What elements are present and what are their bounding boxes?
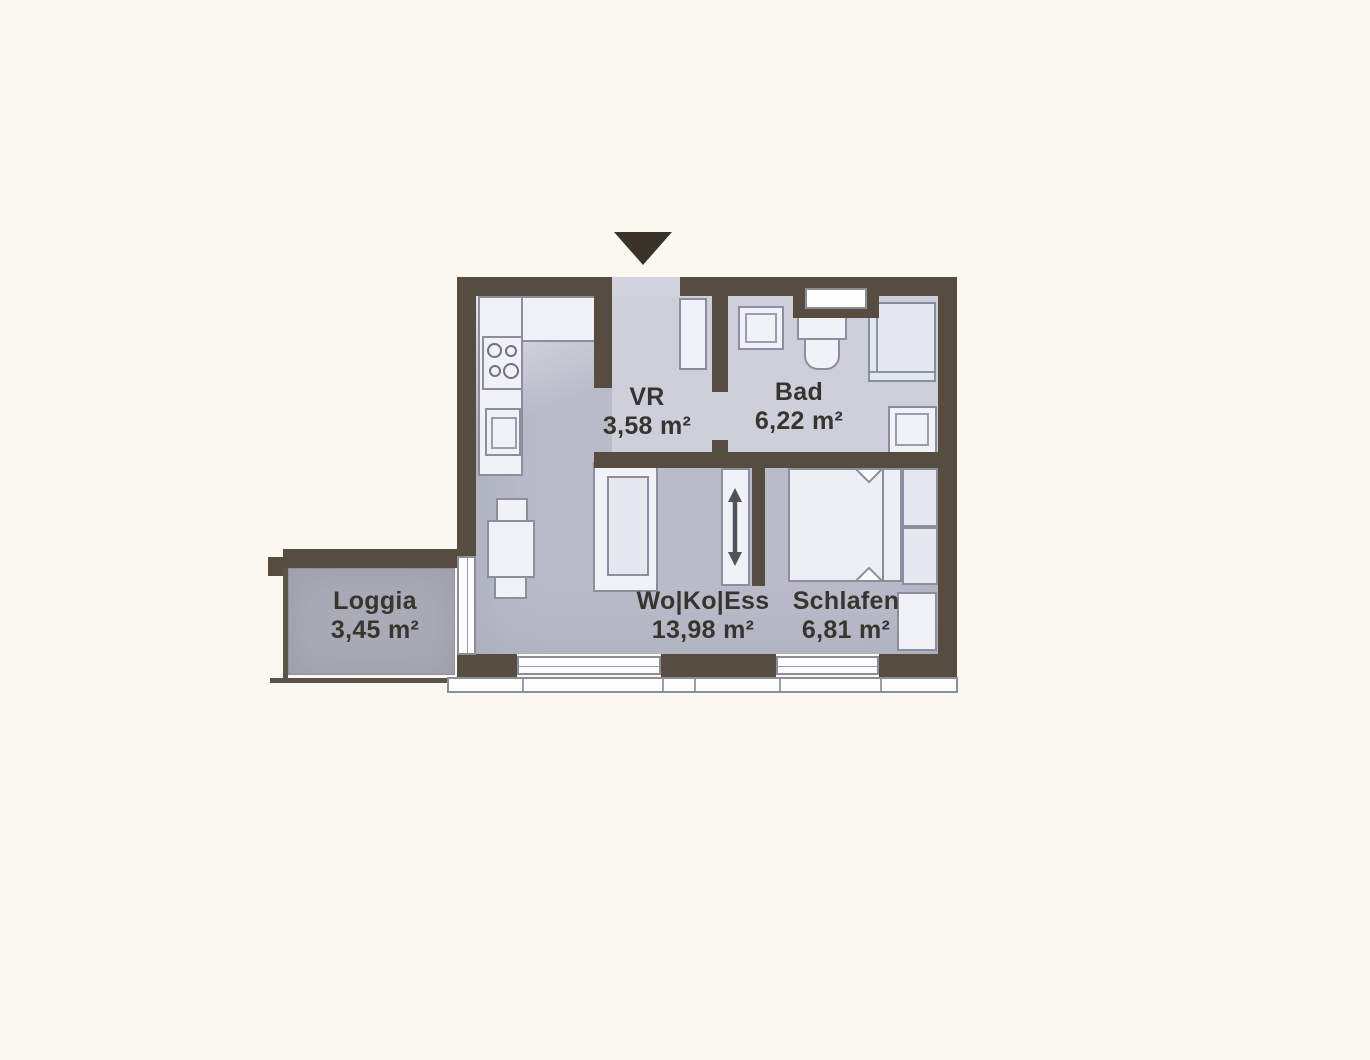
cabinet-inner <box>745 313 777 343</box>
room-name: Wo|Ko|Ess <box>637 587 770 616</box>
wall-bottom-a <box>457 654 517 677</box>
wall-left <box>457 277 476 560</box>
window-living-icon <box>517 656 661 675</box>
room-label-loggia: Loggia 3,45 m² <box>331 587 419 645</box>
kitchen-sink-icon <box>485 408 521 456</box>
wall-hall-bath-stub <box>712 440 728 452</box>
room-label-wokoess: Wo|Ko|Ess 13,98 m² <box>637 587 770 645</box>
window-bedroom-icon <box>776 656 879 675</box>
loggia-door-icon <box>457 556 476 655</box>
bath-cabinet-icon <box>738 306 784 350</box>
bed-fold-mark <box>853 468 884 484</box>
bedside-cabinet-icon <box>897 592 937 651</box>
room-name: Bad <box>755 378 843 407</box>
chair-icon <box>496 498 528 522</box>
wall-right <box>938 277 957 677</box>
wall-middle <box>594 452 957 468</box>
wall-hall-bath <box>712 296 728 392</box>
wall-living-bedroom <box>752 468 765 586</box>
bath-sink-icon <box>888 406 937 454</box>
sink-basin <box>895 413 929 446</box>
room-label-bad: Bad 6,22 m² <box>755 378 843 436</box>
room-label-schlafen: Schlafen 6,81 m² <box>793 587 900 645</box>
dining-table-icon <box>487 520 535 578</box>
wall-loggia-stub <box>268 557 283 576</box>
room-name: Loggia <box>331 587 419 616</box>
sill-divider <box>880 679 882 691</box>
sofa-seat <box>607 476 649 576</box>
sill-divider <box>662 679 664 691</box>
chair-icon <box>494 576 527 599</box>
entrance-arrow-icon <box>614 232 672 265</box>
room-label-vr: VR 3,58 m² <box>603 383 691 441</box>
bed-fold-mark <box>853 566 884 582</box>
stove-burner-icon <box>505 345 517 357</box>
toilet-bowl-icon <box>804 338 840 370</box>
shower-line <box>870 371 934 373</box>
stove-burner-icon <box>487 343 502 358</box>
wardrobe-icon <box>902 468 938 527</box>
room-name: Schlafen <box>793 587 900 616</box>
sink-basin <box>491 417 517 449</box>
bath-window-icon <box>805 288 867 309</box>
bed-edge-line <box>882 470 884 580</box>
entry-door-leaf <box>679 298 707 370</box>
room-area: 3,58 m² <box>603 412 691 441</box>
room-name: VR <box>603 383 691 412</box>
wardrobe-icon <box>902 527 938 585</box>
stove-icon <box>482 336 523 390</box>
sill-divider <box>522 679 524 691</box>
wall-bottom-b <box>661 654 776 677</box>
wall-kitchen-hall <box>594 296 612 388</box>
room-area: 13,98 m² <box>637 616 770 645</box>
stove-burner-icon <box>489 365 501 377</box>
floor-entrance-gap <box>612 277 680 296</box>
room-area: 3,45 m² <box>331 616 419 645</box>
floor-plan-canvas: VR 3,58 m² Bad 6,22 m² Wo|Ko|Ess 13,98 m… <box>0 0 1370 1060</box>
toilet-cistern-icon <box>797 316 847 340</box>
room-area: 6,81 m² <box>793 616 900 645</box>
room-area: 6,22 m² <box>755 407 843 436</box>
loggia-rail-left <box>283 568 288 683</box>
sill-divider <box>694 679 696 691</box>
wall-loggia-top <box>283 549 457 568</box>
sill-divider <box>779 679 781 691</box>
window-sill-band <box>447 677 958 693</box>
wall-bottom-c <box>879 654 957 677</box>
loggia-rail-bottom <box>270 678 457 683</box>
bed-icon <box>788 468 902 582</box>
wall-top-left <box>457 277 612 296</box>
stove-burner-icon <box>503 363 519 379</box>
